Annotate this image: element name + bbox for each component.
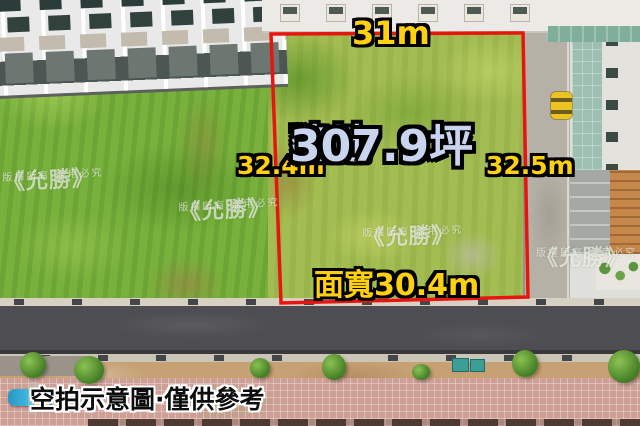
building-roof-gray	[570, 170, 610, 254]
tree	[20, 352, 46, 378]
building-roof-top-right	[540, 0, 640, 26]
tree	[512, 350, 538, 377]
townhouse-roofs-top-left	[0, 0, 288, 96]
asphalt-road	[0, 306, 640, 354]
aerial-listing-photo: 《允勝》 版權所有·盜用必究 《允勝》 版權所有·盜用必究 《允勝》 版權所有·…	[0, 0, 640, 426]
tree	[412, 364, 430, 380]
buildings-right	[570, 0, 640, 310]
tree	[250, 358, 270, 378]
building-facade-balconies	[602, 42, 640, 170]
fence-bottom	[88, 419, 640, 426]
stair-bulkhead	[510, 4, 530, 22]
measurement-right-32-5m: 32.5m	[486, 151, 574, 180]
stair-bulkhead	[280, 4, 300, 22]
yellow-car	[551, 92, 572, 119]
tree	[608, 350, 640, 383]
disclaimer-caption: ★ 空拍示意圖·僅供參考	[28, 382, 38, 414]
dumpster	[452, 358, 469, 372]
building-panel-teal	[572, 42, 602, 170]
tree	[322, 354, 346, 380]
measurement-top-31m: 31m	[352, 14, 430, 52]
building-garden-patio	[596, 254, 640, 290]
stair-bulkhead	[326, 4, 346, 22]
area-size-text: 307.9坪	[290, 124, 473, 170]
building-deck-wood	[610, 170, 640, 254]
disclaimer-text: 空拍示意圖·僅供參考	[30, 380, 265, 416]
stair-bulkhead	[464, 4, 484, 22]
measurement-frontage-30-4m: 面寬30.4m	[314, 260, 479, 304]
building-canopy-teal	[546, 24, 640, 42]
dumpster	[470, 359, 485, 372]
